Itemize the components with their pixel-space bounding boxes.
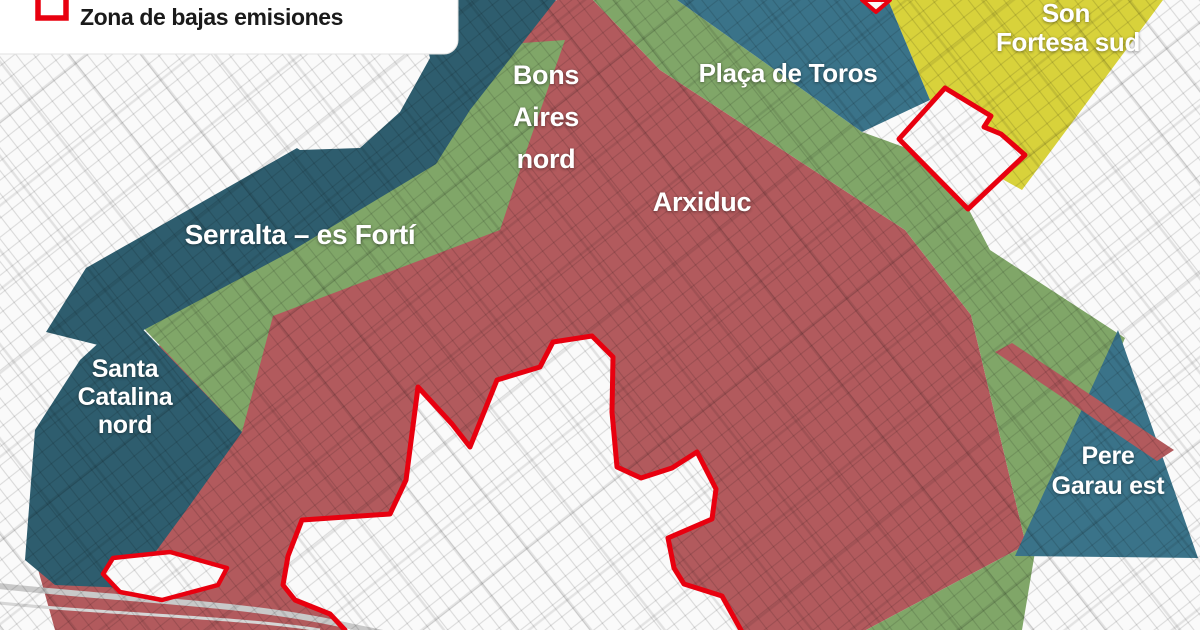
- label-bons-aires-line2: Aires: [513, 102, 579, 132]
- label-pere-garau-line2: Garau est: [1052, 472, 1166, 500]
- label-son-fortesa-line2: Fortesa sud: [996, 27, 1140, 57]
- palma-low-emissions-map: Bons Aires nord Plaça de Toros Son Forte…: [0, 0, 1200, 630]
- label-santa-catalina-line2: Catalina: [78, 383, 174, 411]
- label-bons-aires-line3: nord: [517, 144, 576, 174]
- label-santa-catalina-line1: Santa: [92, 355, 160, 383]
- label-arxiduc: Arxiduc: [653, 187, 752, 217]
- legend: Zona de bajas emisiones: [0, 0, 458, 54]
- lez-boundary-swatch-icon: [38, 0, 66, 18]
- label-placa-de-toros: Plaça de Toros: [699, 58, 878, 88]
- map-canvas: Bons Aires nord Plaça de Toros Son Forte…: [0, 0, 1200, 630]
- legend-label: Zona de bajas emisiones: [80, 4, 343, 30]
- label-pere-garau-line1: Pere: [1081, 442, 1134, 470]
- avenue-texture-b: [0, 0, 1200, 630]
- label-serralta-es-forti: Serralta – es Fortí: [185, 219, 417, 250]
- label-santa-catalina-line3: nord: [98, 411, 152, 439]
- label-son-fortesa-line1: Son: [1042, 0, 1090, 28]
- label-bons-aires-line1: Bons: [513, 60, 579, 90]
